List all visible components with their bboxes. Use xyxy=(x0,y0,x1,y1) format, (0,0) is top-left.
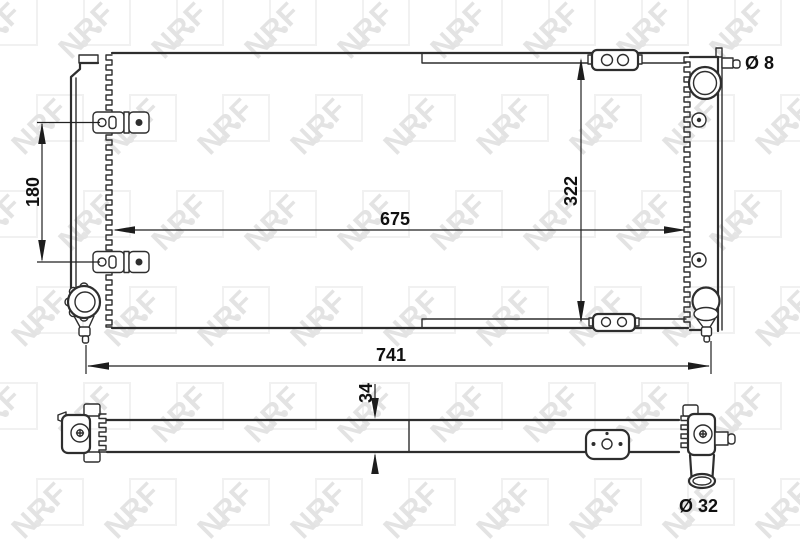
serrated-strip xyxy=(99,414,106,452)
right-tank-top-notch xyxy=(716,48,722,57)
dim-overall-width: 741 xyxy=(86,341,711,374)
bottom-mount-bracket xyxy=(589,314,639,331)
arrow-down-icon xyxy=(38,240,46,262)
side-left-end-cap xyxy=(58,404,106,462)
side-pipe-tip xyxy=(728,434,735,444)
tank-bolt-upper xyxy=(692,113,706,127)
dim-core-height-label: 322 xyxy=(561,176,581,206)
bracket-plate xyxy=(593,314,635,331)
dim-bracket-pitch: 180 xyxy=(23,123,100,263)
left-mount-bracket-lower xyxy=(93,252,149,273)
inlet-diameter-label: Ø 8 xyxy=(745,53,774,73)
arrow-right-icon xyxy=(688,362,710,370)
dim-thickness: 34 xyxy=(356,383,379,474)
bracket-dot xyxy=(592,442,596,446)
dim-core-width: 675 xyxy=(113,209,686,234)
right-tank xyxy=(689,48,740,342)
bracket-plate xyxy=(592,50,638,70)
arrow-left-icon xyxy=(87,362,109,370)
bracket-dot xyxy=(619,442,623,446)
core-bottom-side-plate xyxy=(422,319,686,328)
radiator-technical-drawing: NRFNRFNRFNRFNRFNRFNRFNRFNRFNRFNRFNRFNRFN… xyxy=(0,0,800,540)
bolt-center xyxy=(697,118,701,122)
top-tab xyxy=(84,404,100,416)
drain-tip xyxy=(83,336,89,343)
arrow-up-icon xyxy=(371,453,379,474)
bottom-outlet xyxy=(693,288,720,343)
side-pipe-body xyxy=(715,432,728,445)
inlet-pipe-tip xyxy=(733,60,740,68)
side-view: 34 Ø 32 xyxy=(58,383,735,516)
filler-neck xyxy=(689,67,721,99)
outlet-plug xyxy=(702,327,712,336)
arrow-right-icon xyxy=(664,226,686,234)
radiator-core xyxy=(106,53,690,328)
core-right-serrated-edge xyxy=(684,57,690,327)
dim-bracket-pitch-label: 180 xyxy=(23,177,43,207)
dim-overall-width-label: 741 xyxy=(376,345,406,365)
extension-lines xyxy=(37,123,100,263)
left-mount-bracket-upper xyxy=(93,112,149,133)
left-tank-top-tab xyxy=(79,55,98,63)
arrow-up-icon xyxy=(577,58,585,80)
core-left-serrated-edge xyxy=(106,55,112,327)
core-top-side-plate xyxy=(422,53,686,63)
arrow-left-icon xyxy=(113,226,135,234)
drawing-svg: 675 322 180 xyxy=(0,0,800,540)
front-view: 675 322 180 xyxy=(23,48,774,374)
arrow-up-icon xyxy=(38,123,46,145)
inlet-pipe-small xyxy=(722,58,740,68)
outlet-diameter-label: Ø 32 xyxy=(679,496,718,516)
dim-core-width-label: 675 xyxy=(380,209,410,229)
bolt-center xyxy=(697,258,701,262)
dim-thickness-label: 34 xyxy=(356,383,376,403)
outlet-tip xyxy=(704,336,710,342)
tank-bolt-lower xyxy=(692,253,706,267)
side-center-bracket xyxy=(586,430,629,459)
top-mount-bracket xyxy=(588,50,642,70)
bracket-dot xyxy=(605,432,608,435)
side-right-end-cap xyxy=(681,405,735,488)
inlet-pipe-body xyxy=(722,58,733,68)
outlet-ellipse xyxy=(694,308,718,321)
drain-body xyxy=(79,327,90,336)
left-hose-boss xyxy=(65,283,100,321)
dim-core-height: 322 xyxy=(561,58,585,323)
